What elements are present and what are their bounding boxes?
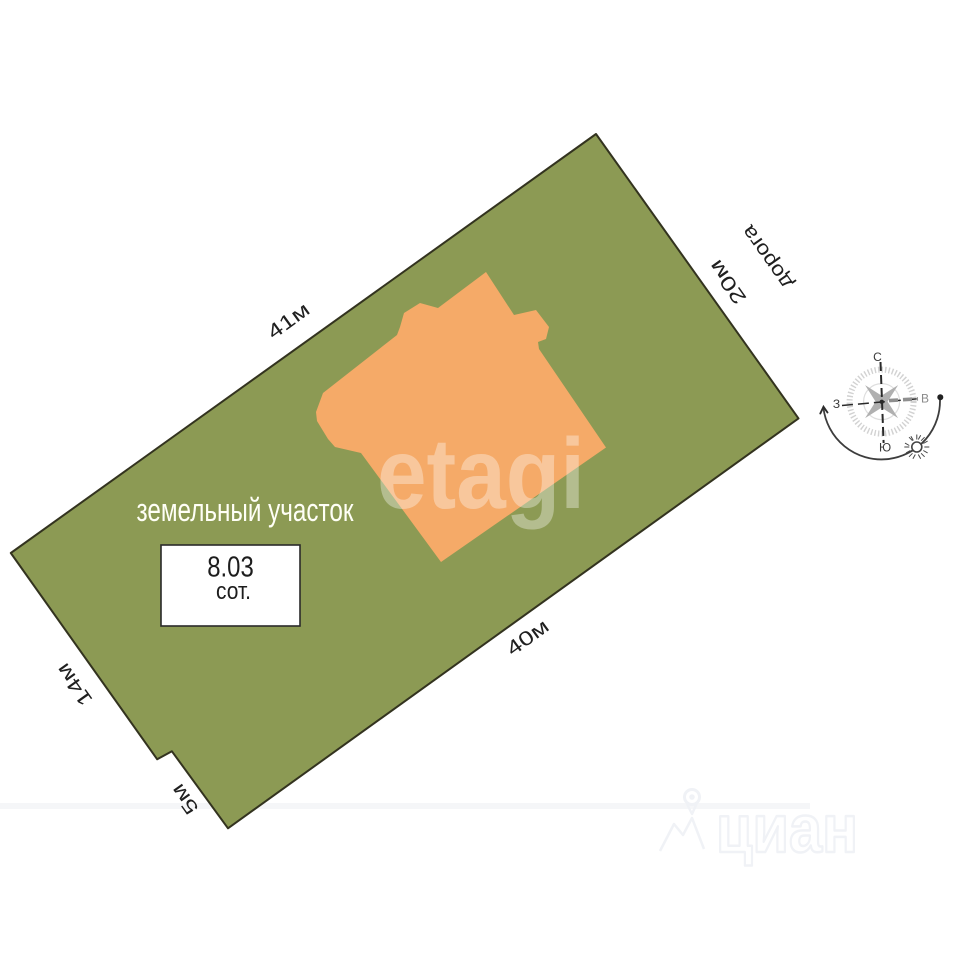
svg-text:В: В — [921, 392, 929, 406]
svg-text:С: С — [873, 350, 882, 364]
svg-text:Ю: Ю — [879, 441, 891, 455]
svg-text:etagi: etagi — [377, 418, 585, 530]
svg-text:З: З — [833, 397, 840, 411]
svg-text:сот.: сот. — [216, 578, 251, 605]
svg-text:земельный участок: земельный участок — [137, 492, 355, 528]
svg-text:циан: циан — [716, 791, 858, 867]
